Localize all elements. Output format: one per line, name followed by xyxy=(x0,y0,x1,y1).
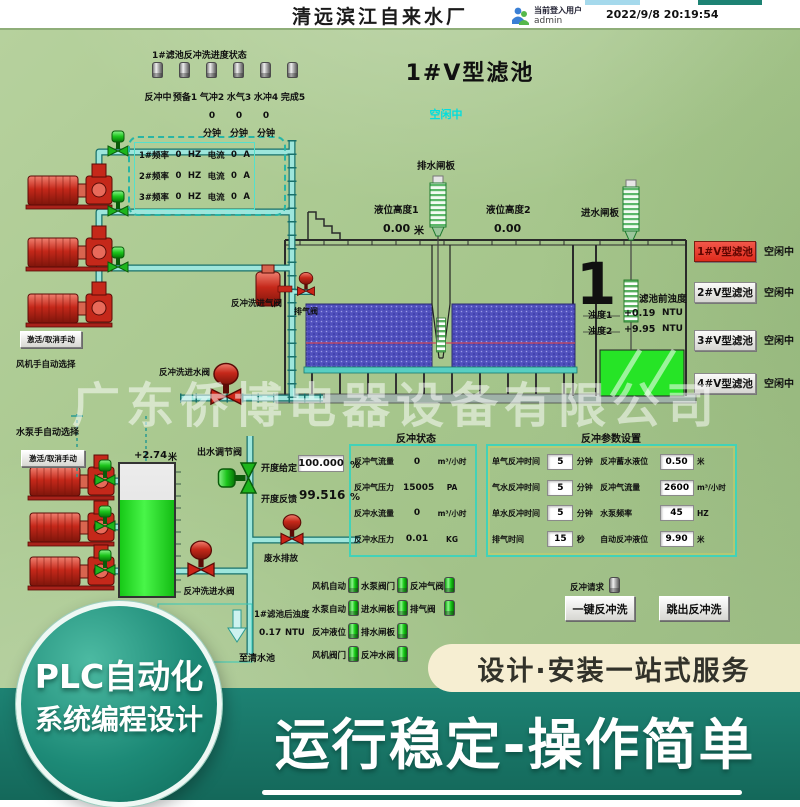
opening-fb-value: 99.516 xyxy=(299,488,345,502)
param-unit: 米 xyxy=(697,456,731,467)
backwash-supply-valve-label: 反冲洗进水阀 xyxy=(171,585,247,597)
freq-unit: HZ xyxy=(188,171,201,181)
param-label: 反冲蓄水液位 xyxy=(600,456,656,467)
param-unit: 分钟 xyxy=(577,508,597,519)
status-row: 反冲水流量0m³/小时 xyxy=(354,508,472,519)
level1-value: 0.00 xyxy=(383,222,410,235)
status-label: 反冲气压力 xyxy=(354,482,402,493)
param-row: 单水反冲时间5分钟水泵频率45HZ xyxy=(492,505,731,521)
exhaust-valve-label: 排气阀 xyxy=(294,306,318,317)
opening-fb-unit: % xyxy=(350,492,360,503)
param-unit: 秒 xyxy=(577,534,597,545)
step-timer-unit: 分钟 xyxy=(227,126,251,139)
freq-value: 0 xyxy=(175,192,181,202)
step-indicator-light xyxy=(179,62,190,78)
opening-set-label: 开度给定 xyxy=(261,461,297,474)
interlock-light xyxy=(348,623,359,639)
interlock-light xyxy=(348,646,359,662)
step-indicator-light xyxy=(287,62,298,78)
step-indicator-light xyxy=(260,62,271,78)
status-label: 反冲水流量 xyxy=(354,508,402,519)
interlock-light xyxy=(397,646,408,662)
page-title: 1#V型滤池 xyxy=(390,55,550,87)
interlock-label: 排水闸板 xyxy=(361,626,395,638)
turbidity2-label: 浊度2 xyxy=(588,324,612,337)
step-timer-unit: 分钟 xyxy=(254,126,278,139)
waste-valve-label: 废水排放 xyxy=(264,552,298,564)
backwash-params-panel: 单气反冲时间5分钟反冲蓄水液位0.50米 气水反冲时间5分钟反冲气流量2600m… xyxy=(486,444,737,557)
one-key-backwash-button[interactable]: 一键反冲洗 xyxy=(565,596,635,621)
param-unit: m³/小时 xyxy=(697,482,731,493)
param-row: 排气时间15秒自动反冲液位9.90米 xyxy=(492,531,731,547)
step-indicator-light xyxy=(152,62,163,78)
login-label: 当前登入用户 xyxy=(534,5,582,16)
opening-fb-label: 开度反馈 xyxy=(261,492,297,505)
param-input[interactable]: 45 xyxy=(660,505,694,521)
inlet-gate-label: 进水闸板 xyxy=(581,205,619,219)
air-inlet-valve-label: 反冲洗进气阀 xyxy=(224,297,282,309)
param-input[interactable]: 9.90 xyxy=(660,531,694,547)
step-indicator-light xyxy=(206,62,217,78)
turbidity2-value: +9.95 xyxy=(624,324,655,335)
level2-label: 液位高度2 xyxy=(486,202,531,216)
post-turbidity-label: 1#滤池后浊度 xyxy=(254,608,310,620)
tank-fill-level xyxy=(120,500,174,596)
filter-4-status: 空闲中 xyxy=(764,375,794,390)
status-row: 反冲气流量0m³/小时 xyxy=(354,456,472,467)
outlet-valve-label: 出水调节阀 xyxy=(197,445,242,458)
blower-mode-label: 风机手自动选择 xyxy=(16,358,76,370)
interlock-label: 风机阀门 xyxy=(312,649,346,661)
param-input[interactable]: 0.50 xyxy=(660,454,694,470)
status-unit: PA xyxy=(432,483,472,492)
filter-3-button[interactable]: 3#V型滤池 xyxy=(694,330,756,351)
interlock-label: 水泵自动 xyxy=(312,603,346,615)
turbidity1-label: 浊度1 xyxy=(588,308,612,321)
filter-2-status: 空闲中 xyxy=(764,284,794,299)
param-input[interactable]: 5 xyxy=(547,480,573,496)
current-value: 0 xyxy=(231,150,237,160)
current-label: 电流 xyxy=(208,149,225,161)
param-label: 排气时间 xyxy=(492,534,544,545)
current-unit: A xyxy=(243,192,250,202)
backwash-request-label: 反冲请求 xyxy=(570,581,604,593)
backwash-params-title: 反冲参数设置 xyxy=(566,430,656,445)
param-unit: 米 xyxy=(697,534,731,545)
banner-underline xyxy=(262,790,742,795)
interlock-light xyxy=(348,600,359,616)
pre-turbidity-label: 滤池前浊度 xyxy=(639,291,687,305)
level1-unit: 米 xyxy=(414,222,424,237)
current-unit: A xyxy=(243,150,250,160)
param-label: 气水反冲时间 xyxy=(492,482,544,493)
interlock-label: 进水闸板 xyxy=(361,603,395,615)
plc-badge-line1: PLC自动化 xyxy=(21,650,217,698)
top-tab-strip-teal xyxy=(698,0,762,5)
user-icon xyxy=(511,6,530,25)
param-input[interactable]: 15 xyxy=(547,531,573,547)
current-label: 电流 xyxy=(208,191,225,203)
step-label: 完成5 xyxy=(275,90,311,103)
param-unit: 分钟 xyxy=(577,456,597,467)
step-timer-unit: 分钟 xyxy=(200,126,224,139)
exit-backwash-button[interactable]: 跳出反冲洗 xyxy=(659,596,729,621)
interlock-label: 水泵阀门 xyxy=(361,580,395,592)
interlock-light xyxy=(444,577,455,593)
freq-value: 0 xyxy=(175,150,181,160)
backwash-progress-title: 1#滤池反冲洗进度状态 xyxy=(152,48,247,61)
interlock-light xyxy=(348,577,359,593)
param-input[interactable]: 2600 xyxy=(660,480,694,496)
status-value: 0 xyxy=(403,508,431,518)
pump-manual-toggle-button[interactable]: 激活/取消手动 xyxy=(21,450,85,467)
tank-level-unit: 米 xyxy=(168,450,177,463)
interlock-label: 排气阀 xyxy=(410,603,436,615)
param-row: 单气反冲时间5分钟反冲蓄水液位0.50米 xyxy=(492,454,731,470)
pump-mode-label: 水泵手自动选择 xyxy=(16,425,79,438)
current-label: 电流 xyxy=(208,170,225,182)
param-label: 单气反冲时间 xyxy=(492,456,544,467)
param-label: 水泵频率 xyxy=(600,508,656,519)
plc-badge-line2: 系统编程设计 xyxy=(21,698,217,738)
current-unit: A xyxy=(243,171,250,181)
filter-3-status: 空闲中 xyxy=(764,332,794,347)
status-unit: m³/小时 xyxy=(432,508,472,519)
level1-label: 液位高度1 xyxy=(374,202,419,216)
interlock-label: 风机自动 xyxy=(312,580,346,592)
header-bar: 清远滨江自来水厂 当前登入用户 admin 2022/9/8 20:19:54 xyxy=(0,0,800,30)
blower-row: 2#频率0HZ电流0A xyxy=(139,170,250,182)
service-pill: 设计·安装一站式服务 xyxy=(428,644,800,692)
param-input[interactable]: 5 xyxy=(547,505,573,521)
freq-label: 1#频率 xyxy=(139,149,169,161)
banner-slogan: 运行稳定-操作简单 xyxy=(235,700,795,780)
param-unit: 分钟 xyxy=(577,482,597,493)
freq-unit: HZ xyxy=(188,192,201,202)
blower-row: 3#频率0HZ电流0A xyxy=(139,191,250,203)
status-label: 反冲水压力 xyxy=(354,534,402,545)
param-input[interactable]: 5 xyxy=(547,454,573,470)
backwash-status-title: 反冲状态 xyxy=(384,430,448,445)
current-value: 0 xyxy=(231,171,237,181)
opening-set-input[interactable]: 100.000 xyxy=(298,455,344,472)
step-indicator-light xyxy=(233,62,244,78)
top-tab-strip-blue xyxy=(585,0,640,5)
opening-set-unit: % xyxy=(350,460,360,471)
interlock-label: 反冲水阀 xyxy=(361,649,395,661)
backwash-water-tank xyxy=(118,462,176,598)
turbidity1-value: +0.19 xyxy=(624,308,655,319)
status-unit: m³/小时 xyxy=(432,456,472,467)
blower-row: 1#频率0HZ电流0A xyxy=(139,149,250,161)
freq-unit: HZ xyxy=(188,150,201,160)
drain-gate-label: 排水闸板 xyxy=(417,158,455,172)
pool-water-inlet-valve-label: 反冲洗进水阀 xyxy=(146,366,210,378)
status-value: 0 xyxy=(403,457,431,467)
turbidity2-unit: NTU xyxy=(662,324,683,334)
status-label: 反冲气流量 xyxy=(354,456,402,467)
current-value: 0 xyxy=(231,192,237,202)
blower-manual-toggle-button[interactable]: 激活/取消手动 xyxy=(20,331,82,348)
level2-value: 0.00 xyxy=(494,222,521,235)
status-value: 0.01 xyxy=(403,534,431,544)
pool-status-text: 空闲中 xyxy=(416,106,476,122)
step-timer-value: 0 xyxy=(256,111,276,121)
param-unit: HZ xyxy=(697,509,731,518)
filter-2-button[interactable]: 2#V型滤池 xyxy=(694,282,756,303)
interlock-light xyxy=(397,623,408,639)
interlock-light xyxy=(397,577,408,593)
interlock-label: 反冲液位 xyxy=(312,626,346,638)
status-value: 15005 xyxy=(403,483,431,493)
filter-1-button[interactable]: 1#V型滤池 xyxy=(694,241,756,262)
status-row: 反冲水压力0.01KG xyxy=(354,534,472,545)
filter-4-button[interactable]: 4#V型滤池 xyxy=(694,373,756,394)
step-timer-value: 0 xyxy=(202,111,222,121)
tank-level-value: +2.74 xyxy=(134,450,167,461)
param-label: 自动反冲液位 xyxy=(600,534,656,545)
step-timer-value: 0 xyxy=(229,111,249,121)
post-turbidity-unit: NTU xyxy=(285,628,305,638)
login-user: admin xyxy=(534,16,562,26)
interlock-label: 反冲气阀 xyxy=(410,580,444,592)
turbidity1-unit: NTU xyxy=(662,308,683,318)
param-label: 单水反冲时间 xyxy=(492,508,544,519)
post-turbidity-value: 0.17 xyxy=(259,628,281,638)
freq-value: 0 xyxy=(175,171,181,181)
datetime: 2022/9/8 20:19:54 xyxy=(606,8,719,21)
param-label: 反冲气流量 xyxy=(600,482,656,493)
backwash-request-light xyxy=(609,577,620,593)
plc-badge: PLC自动化 系统编程设计 xyxy=(16,601,222,807)
freq-label: 3#频率 xyxy=(139,191,169,203)
to-clear-pool-label: 至清水池 xyxy=(239,651,275,664)
blower-freq-panel: 1#频率0HZ电流0A 2#频率0HZ电流0A 3#频率0HZ电流0A xyxy=(134,142,255,210)
param-row: 气水反冲时间5分钟反冲气流量2600m³/小时 xyxy=(492,480,731,496)
plant-title: 清远滨江自来水厂 xyxy=(280,2,480,29)
status-row: 反冲气压力15005PA xyxy=(354,482,472,493)
filter-1-status: 空闲中 xyxy=(764,243,794,258)
backwash-status-panel: 反冲气流量0m³/小时 反冲气压力15005PA 反冲水流量0m³/小时 反冲水… xyxy=(349,444,477,557)
freq-label: 2#频率 xyxy=(139,170,169,182)
interlock-light xyxy=(397,600,408,616)
interlock-light xyxy=(444,600,455,616)
status-unit: KG xyxy=(432,535,472,544)
